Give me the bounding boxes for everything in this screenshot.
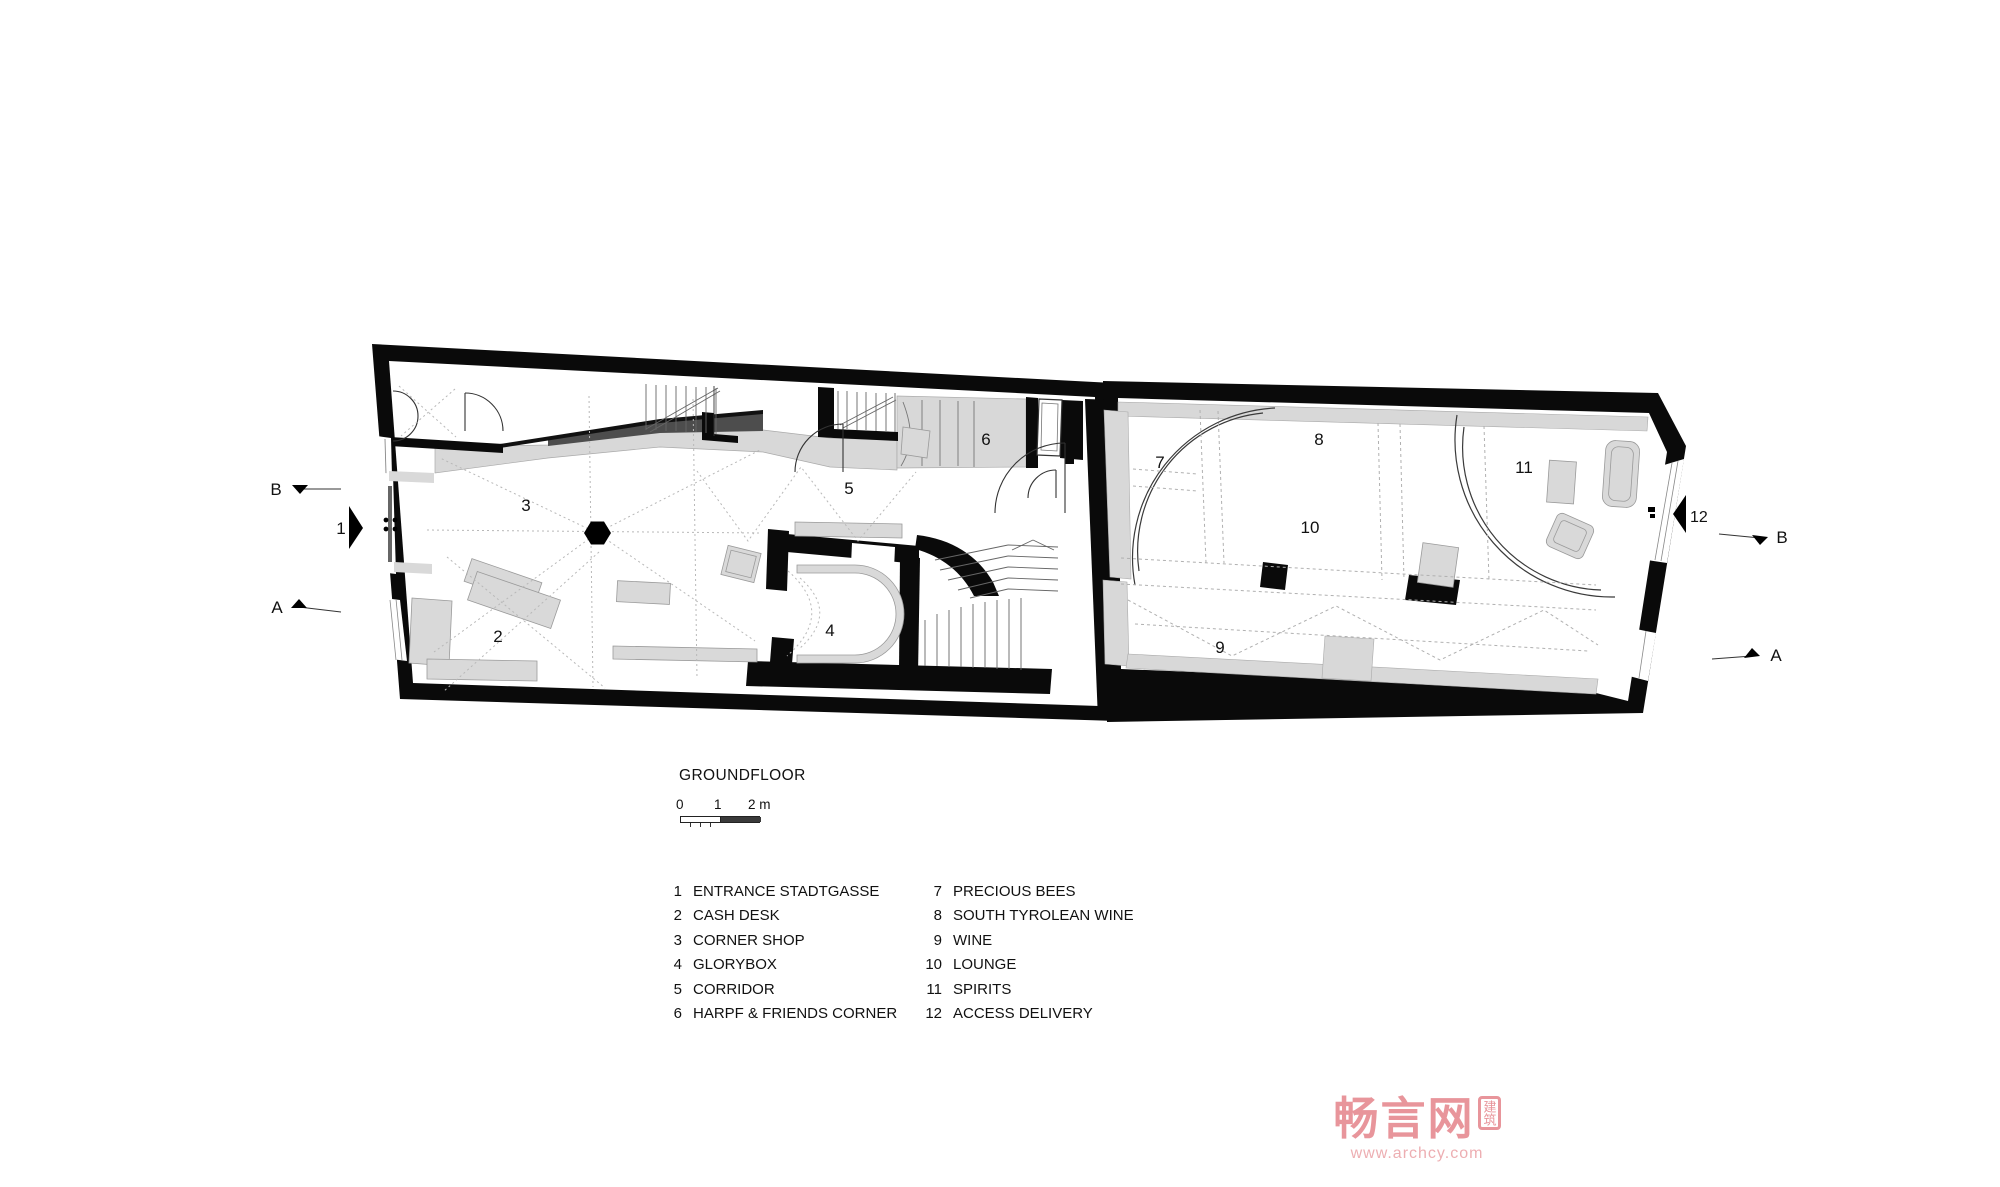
legend-label: SOUTH TYROLEAN WINE [953,904,1134,928]
drawing-title: GROUNDFLOOR [679,767,806,785]
watermark-url: www.archcy.com [1322,1145,1512,1163]
svg-text:A: A [271,598,283,617]
legend-item-5: 5CORRIDOR [658,978,897,1002]
legend-item-3: 3CORNER SHOP [658,929,897,953]
left-building-block [372,344,1117,721]
legend-column-2: 7PRECIOUS BEES 8SOUTH TYROLEAN WINE 9WIN… [918,880,1134,1026]
legend-item-8: 8SOUTH TYROLEAN WINE [918,904,1134,928]
entrance-arrow-icon [349,506,363,549]
watermark-logo-row: 畅言网 建筑 [1322,1094,1512,1144]
scale-bar-graphic [680,816,760,823]
legend-item-6: 6HARPF & FRIENDS CORNER [658,1002,897,1026]
watermark: 畅言网 建筑 www.archcy.com [1322,1094,1512,1163]
entrance-sill-top [389,471,434,483]
legend-num: 4 [658,953,682,977]
room-label-8: 8 [1314,430,1323,449]
page: 2 3 4 5 6 7 8 9 10 11 B A B [0,0,2000,1187]
legend-num: 9 [918,929,942,953]
scale-tick [700,823,701,827]
legend-num: 6 [658,1002,682,1026]
section-a-right: A [1712,646,1782,665]
legend-num: 3 [658,929,682,953]
svg-text:A: A [1770,646,1782,665]
section-arrow-icon [1752,535,1768,545]
section-arrow-icon [1744,648,1760,658]
legend-item-1: 1ENTRANCE STADTGASSE [658,880,897,904]
entrance-marker: 1 [336,506,363,549]
legend-item-11: 11SPIRITS [918,978,1134,1002]
entrance-opening [377,472,396,574]
section-b-left: B [270,480,341,499]
room-label-10: 10 [1301,518,1320,537]
legend-num: 8 [918,904,942,928]
legend-item-4: 4GLORYBOX [658,953,897,977]
legend-item-2: 2CASH DESK [658,904,897,928]
legend-label: ACCESS DELIVERY [953,1002,1093,1026]
window [377,436,392,476]
svg-text:1: 1 [336,519,345,538]
legend-item-7: 7PRECIOUS BEES [918,880,1134,904]
room-label-6: 6 [981,430,990,449]
legend-item-10: 10LOUNGE [918,953,1134,977]
watermark-logo-text: 畅言网 [1333,1094,1474,1144]
legend-num: 11 [918,978,942,1002]
legend-num: 1 [658,880,682,904]
section-a-left: A [271,598,341,617]
legend-num: 10 [918,953,942,977]
scale-bar-segment-1-2 [721,817,761,822]
room-label-4: 4 [825,621,834,640]
legend-label: CORNER SHOP [693,929,805,953]
legend-label: CASH DESK [693,904,780,928]
legend-label: PRECIOUS BEES [953,880,1076,904]
room-label-2: 2 [493,627,502,646]
section-arrow-icon [291,599,307,608]
legend-column-1: 1ENTRANCE STADTGASSE 2CASH DESK 3CORNER … [658,880,897,1026]
legend-num: 5 [658,978,682,1002]
access-delivery-marker: 12 [1673,495,1708,533]
legend-label: LOUNGE [953,953,1016,977]
svg-text:B: B [270,480,281,499]
delivery-door-mark [1648,507,1655,512]
scale-label-0: 0 [676,797,684,812]
legend-label: ENTRANCE STADTGASSE [693,880,879,904]
scale-tick [710,823,711,827]
legend-num: 7 [918,880,942,904]
scale-label-1: 1 [714,797,722,812]
room-label-9: 9 [1215,638,1224,657]
entrance-door-leaf [388,486,392,562]
section-b-right: B [1719,528,1788,547]
legend-num: 2 [658,904,682,928]
room-label-7: 7 [1155,453,1164,472]
entrance-sill-bottom [394,562,432,574]
scale-label-2: 2 m [748,797,771,812]
legend-label: WINE [953,929,992,953]
watermark-seal: 建筑 [1478,1096,1501,1130]
legend-item-9: 9WINE [918,929,1134,953]
room-label-3: 3 [521,496,530,515]
room-label-11: 11 [1515,458,1533,477]
svg-text:B: B [1776,528,1787,547]
legend-label: HARPF & FRIENDS CORNER [693,1002,897,1026]
scale-tick [690,823,691,827]
scale-bar: 0 1 2 m [660,797,800,831]
legend-label: GLORYBOX [693,953,777,977]
svg-text:12: 12 [1690,509,1708,526]
right-building-block [1103,381,1686,722]
scale-bar-segment-0-1 [681,817,721,822]
legend-item-12: 12ACCESS DELIVERY [918,1002,1134,1026]
legend-num: 12 [918,1002,942,1026]
legend-label: SPIRITS [953,978,1011,1002]
room-label-5: 5 [844,479,853,498]
legend-label: CORRIDOR [693,978,775,1002]
